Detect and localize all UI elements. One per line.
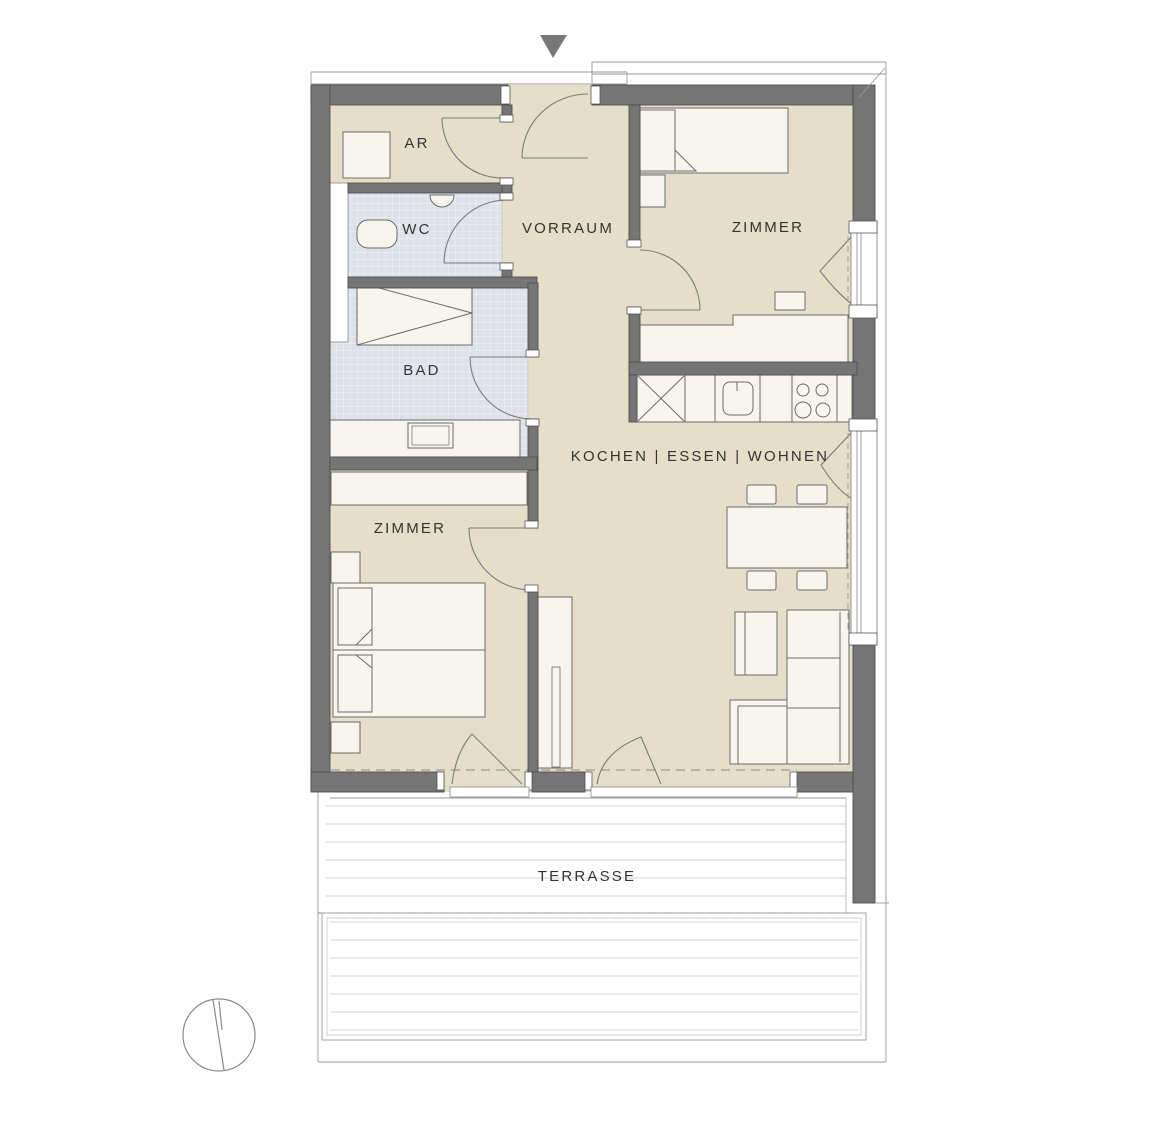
single-bed: [640, 108, 788, 173]
kitchen-sink: [723, 382, 753, 415]
nightstand: [331, 552, 360, 583]
room-label-ar: AR: [404, 135, 429, 152]
installation-shaft: [330, 183, 348, 342]
room-label-zimmer-top: ZIMMER: [732, 219, 804, 236]
nightstand: [331, 722, 360, 753]
double-bed: [333, 583, 485, 717]
room-label-terrasse: TERRASSE: [538, 868, 636, 885]
bathroom-vanity: [330, 420, 520, 457]
wardrobe: [331, 472, 527, 505]
room-label-zimmer-bottom: ZIMMER: [374, 520, 446, 537]
room-label-wc: WC: [402, 221, 431, 238]
room-label-bad: BAD: [403, 362, 440, 379]
kitchen-counter: [637, 375, 852, 422]
tall-cabinet: [538, 597, 572, 768]
side-table: [775, 292, 805, 310]
glass-front-threshold: [591, 787, 797, 797]
armchair: [735, 612, 777, 675]
french-window: [848, 419, 877, 645]
bathtub: [357, 282, 472, 345]
room-label-kochen-essen-wohnen: KOCHEN | ESSEN | WOHNEN: [571, 448, 829, 465]
terrace-door-threshold: [450, 787, 529, 797]
french-window: [848, 221, 877, 318]
floor-plan-page: AR WC BAD VORRAUM ZIMMER KOCHEN | ESSEN …: [0, 0, 1152, 1127]
toilet: [357, 220, 397, 248]
floor-plan-drawing: AR WC BAD VORRAUM ZIMMER KOCHEN | ESSEN …: [0, 0, 1152, 1127]
room-label-vorraum: VORRAUM: [522, 220, 614, 237]
storage-box: [343, 132, 390, 178]
